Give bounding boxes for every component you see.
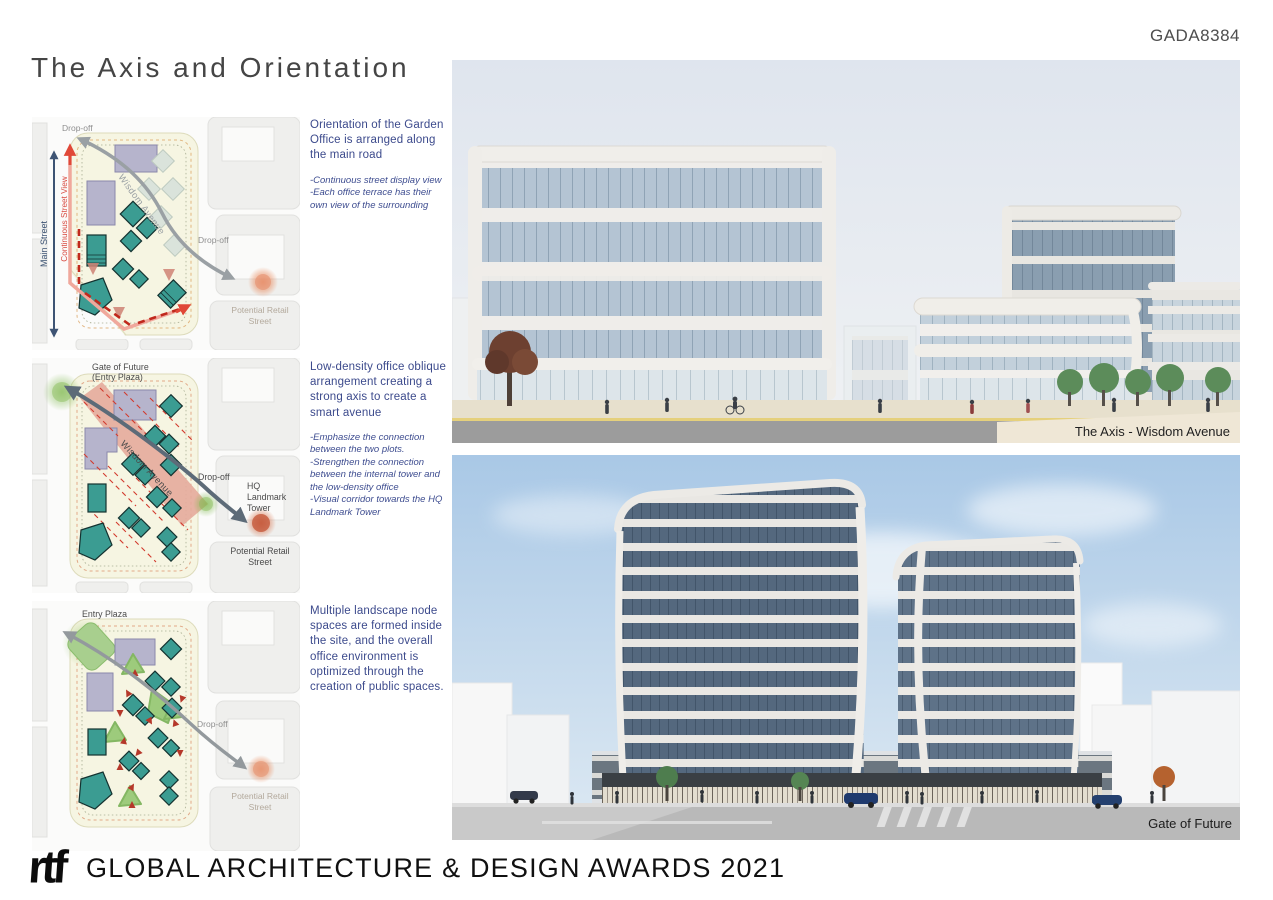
street bbox=[452, 803, 1240, 840]
drop-off-top-label: Drop-off bbox=[62, 123, 93, 133]
retail-street-label-2: Street bbox=[249, 802, 272, 812]
gate-node bbox=[52, 382, 72, 402]
hq-tower-label-2: Landmark bbox=[247, 492, 287, 502]
presentation-board: GADA8384 The Axis and Orientation bbox=[0, 0, 1273, 900]
note-heading: Orientation of the Garden Office is arra… bbox=[310, 118, 450, 164]
note-landscape: Multiple landscape node spaces are forme… bbox=[310, 604, 450, 706]
dropoff-node bbox=[199, 497, 213, 511]
hq-tower-label-3: Tower bbox=[247, 503, 271, 513]
sidewalk bbox=[452, 400, 1240, 418]
render-wisdom-avenue: The Axis - Wisdom Avenue bbox=[452, 60, 1240, 448]
rtf-logo-text: rtf bbox=[30, 845, 70, 891]
render-gate-of-future: Gate of Future bbox=[452, 455, 1240, 845]
drop-off-label: Drop-off bbox=[198, 472, 230, 482]
note-bullets: -Continuous street display view -Each of… bbox=[310, 175, 450, 213]
retail-node bbox=[255, 274, 271, 290]
retail-street-label-2: Street bbox=[248, 557, 272, 567]
note-heading: Low-density office oblique arrangement c… bbox=[310, 360, 450, 421]
drop-off-mid-label: Drop-off bbox=[198, 235, 229, 245]
right-tower bbox=[896, 539, 1080, 800]
continuous-street-view-label: Continuous Street View bbox=[60, 176, 69, 262]
retail-node bbox=[252, 514, 270, 532]
footer: rtf GLOBAL ARCHITECTURE & DESIGN AWARDS … bbox=[30, 845, 785, 891]
retail-node bbox=[253, 761, 269, 777]
site-diagram-landscape: Entry Plaza Drop-off Potential Retail St… bbox=[32, 601, 300, 851]
note-bullets: -Emphasize the connection between the tw… bbox=[310, 432, 450, 520]
award-title: GLOBAL ARCHITECTURE & DESIGN AWARDS 2021 bbox=[86, 853, 785, 884]
retail-street-label-1: Potential Retail bbox=[230, 546, 289, 556]
drop-off-label: Drop-off bbox=[197, 719, 228, 729]
render-caption: Gate of Future bbox=[1148, 816, 1232, 831]
gate-of-future-label-1: Gate of Future bbox=[92, 362, 149, 372]
entry-plaza-label: Entry Plaza bbox=[82, 609, 127, 619]
retail-street-label-1: Potential Retail bbox=[231, 791, 288, 801]
render-caption: The Axis - Wisdom Avenue bbox=[1075, 424, 1230, 439]
note-heading: Multiple landscape node spaces are forme… bbox=[310, 604, 450, 695]
main-street-label: Main Street bbox=[39, 220, 49, 267]
retail-street-label-2: Street bbox=[249, 316, 272, 326]
site-diagram-orientation: Drop-off Drop-off Wisdom Avenue Main Str… bbox=[32, 117, 300, 350]
page-title: The Axis and Orientation bbox=[31, 52, 410, 84]
note-orientation: Orientation of the Garden Office is arra… bbox=[310, 118, 450, 212]
left-tower bbox=[618, 483, 864, 800]
gate-of-future-label-2: (Entry Plaza) bbox=[92, 372, 143, 382]
note-axis: Low-density office oblique arrangement c… bbox=[310, 360, 450, 519]
site-diagram-axis: Gate of Future (Entry Plaza) Wisdom Aven… bbox=[32, 358, 300, 593]
retail-street-label-1: Potential Retail bbox=[231, 305, 288, 315]
hq-tower-label-1: HQ bbox=[247, 481, 260, 491]
rtf-logo: rtf bbox=[30, 845, 78, 891]
award-entry-code: GADA8384 bbox=[1150, 26, 1240, 46]
